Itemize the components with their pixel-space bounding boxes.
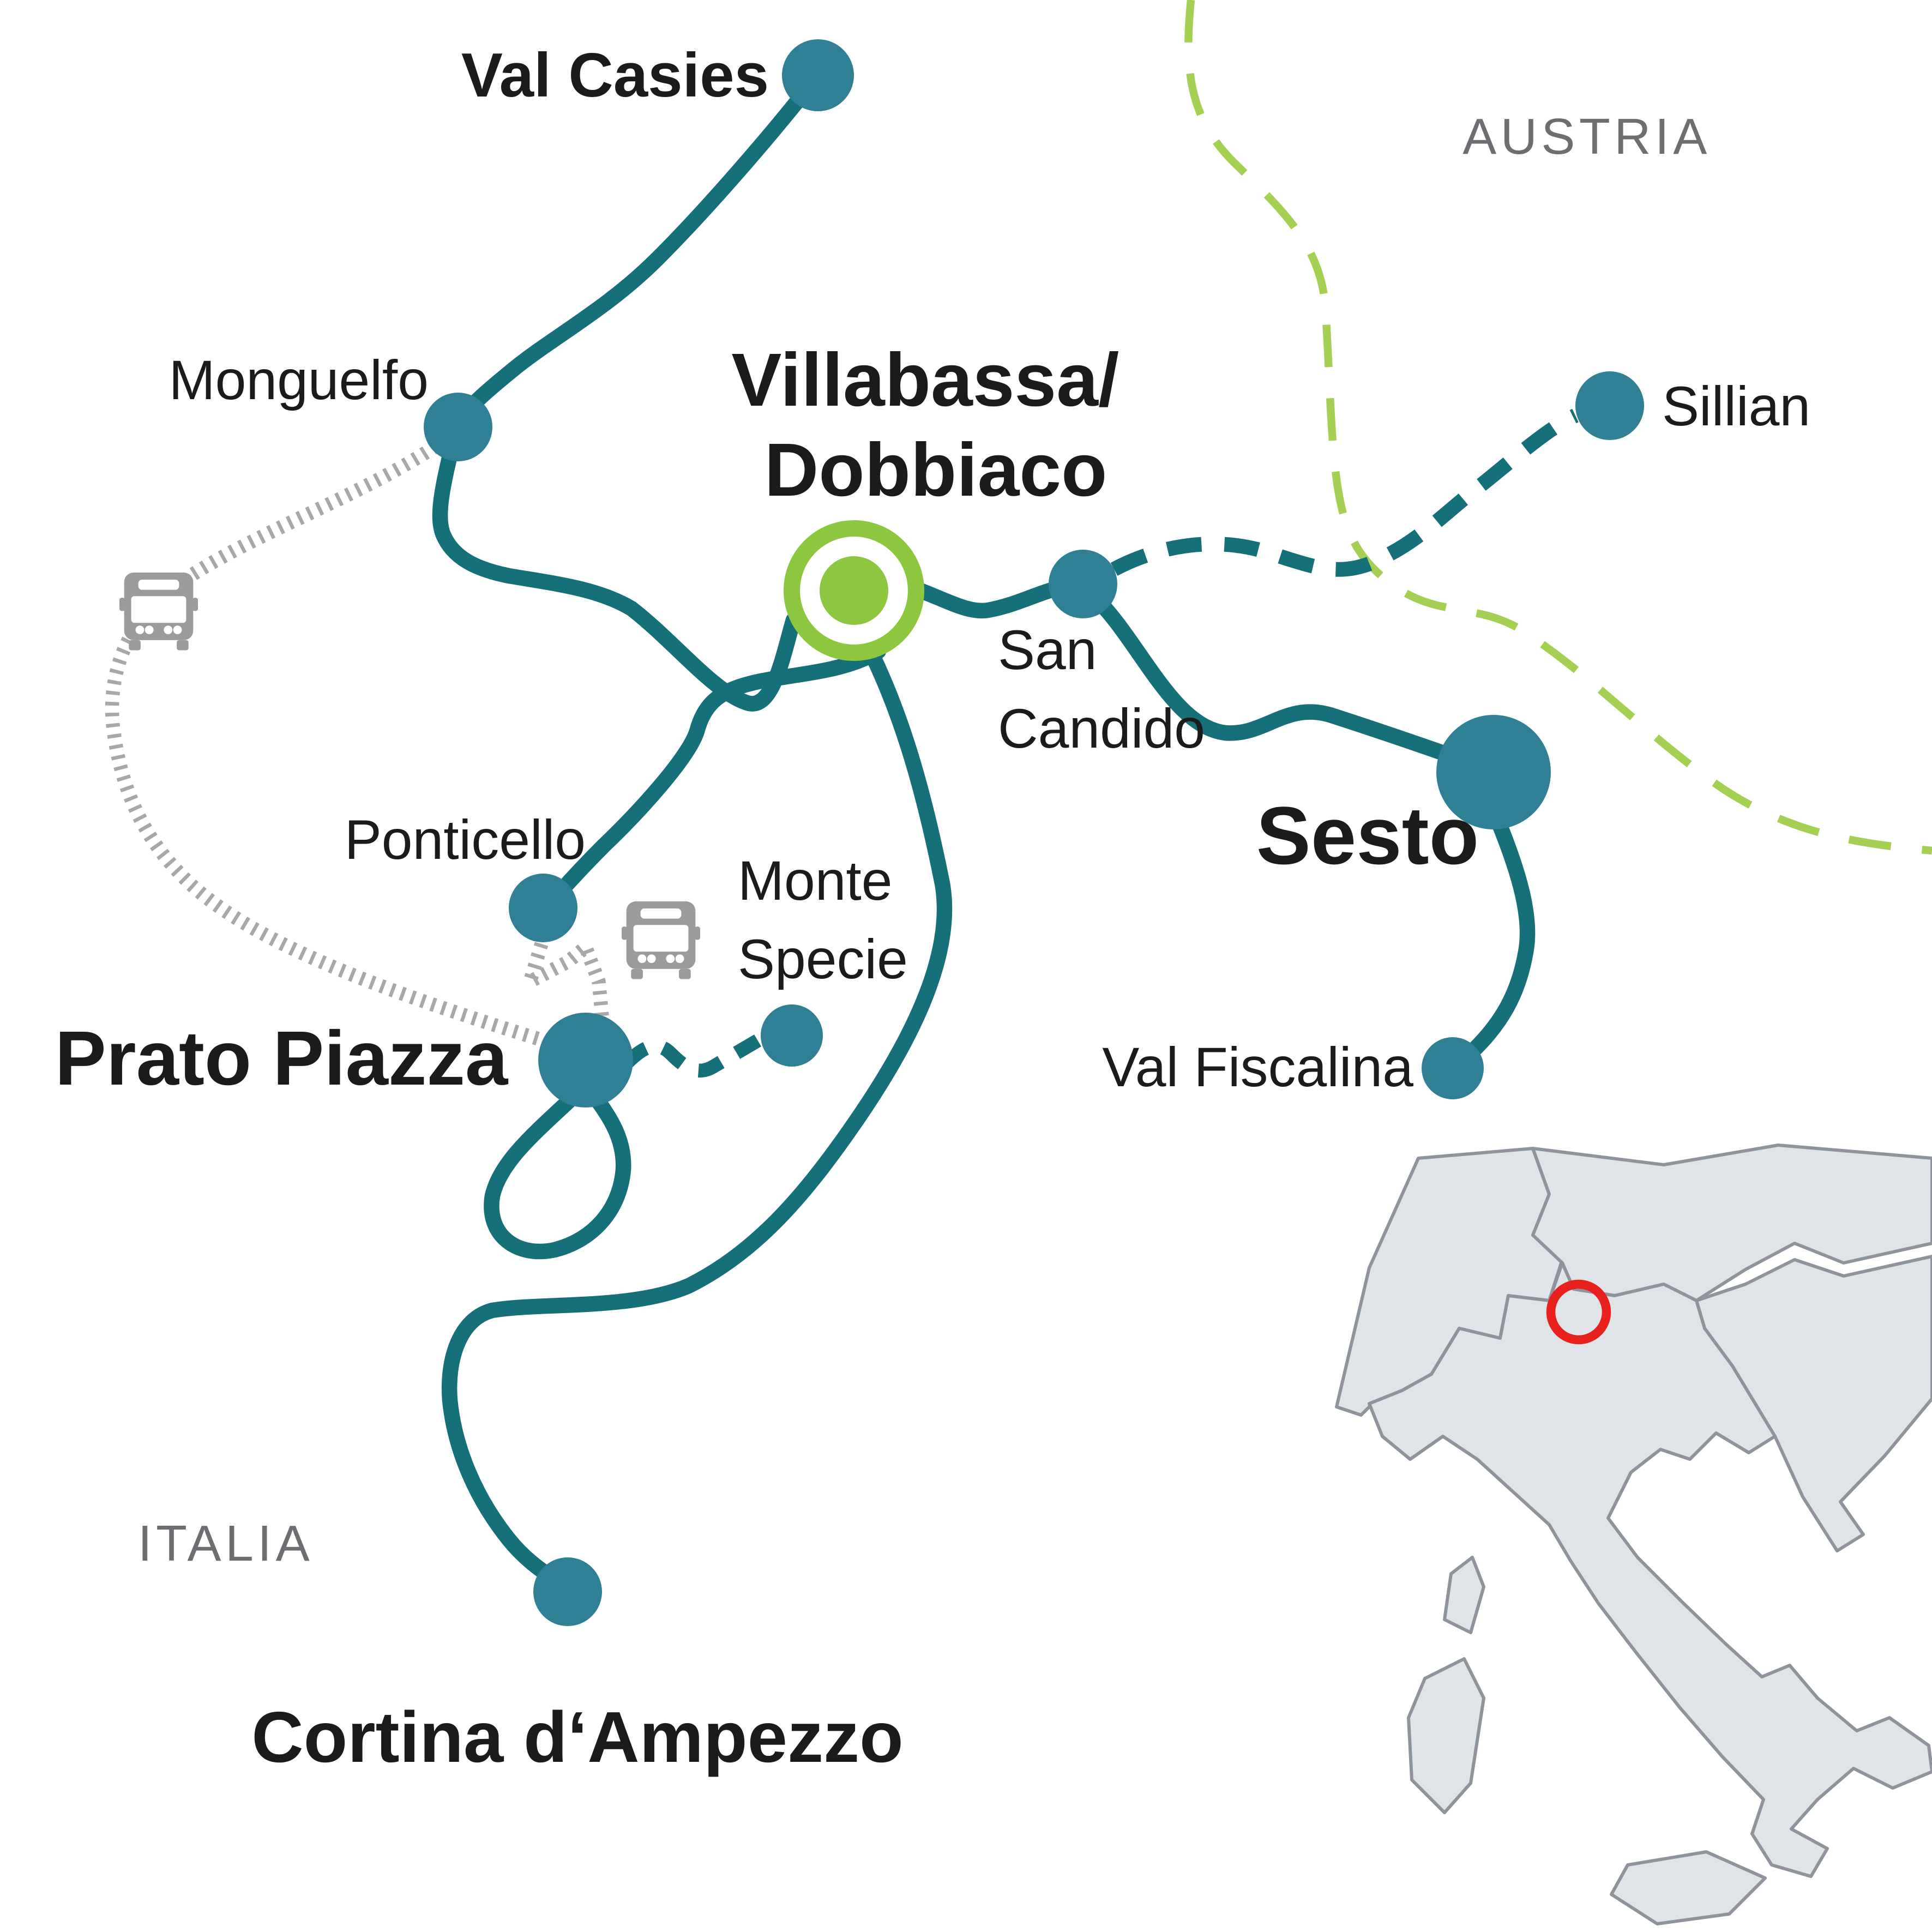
- label-villabassa-line2: Dobbiaco: [765, 428, 1108, 512]
- label-villabassa-dobbiaco: Villabassa/ Dobbiaco: [731, 338, 1140, 512]
- bus-route-monguelfo-prato-piazza: [112, 447, 538, 1039]
- bus-route-lines: [112, 447, 602, 1039]
- station-dot-val-fiscalina: [1422, 1037, 1484, 1099]
- station-dot-prato-piazza: [538, 1013, 633, 1108]
- label-monguelfo: Monguelfo: [169, 349, 429, 411]
- label-monte-specie-line2: Specie: [738, 928, 908, 990]
- label-val-casies: Val Casies: [461, 41, 769, 110]
- label-ponticello: Ponticello: [345, 809, 586, 871]
- label-val-fiscalina: Val Fiscalina: [1102, 1036, 1413, 1098]
- label-prato-piazza: Prato Piazza: [55, 1015, 509, 1101]
- route-prato-piazza-loop: [491, 1094, 623, 1251]
- label-cortina-dampezzo: Cortina d‘Ampezzo: [251, 1697, 903, 1777]
- route-san-candido-sillian-dashed: [1114, 416, 1575, 569]
- bus-icon: [622, 901, 700, 979]
- bus-icon: [119, 573, 198, 651]
- route-map-canvas: Val Casies Monguelfo Villabassa/ Dobbiac…: [0, 0, 1932, 1932]
- route-prato-piazza-monte-specie-dashed: [627, 1039, 761, 1070]
- route-monguelfo-villabassa: [440, 429, 793, 704]
- route-villabassa-cortina: [449, 658, 944, 1587]
- station-dot-san-candido: [1049, 550, 1117, 618]
- inset-island-corsica: [1445, 1557, 1484, 1633]
- label-san-candido-line1: San: [998, 619, 1097, 681]
- hub-inner-dot: [820, 556, 888, 625]
- station-dot-monte-specie: [761, 1004, 823, 1067]
- station-dot-sillian: [1575, 371, 1644, 440]
- inset-island-sicily: [1611, 1852, 1765, 1924]
- label-sesto: Sesto: [1256, 790, 1479, 881]
- station-dot-ponticello: [509, 874, 577, 942]
- hub-marker-villabassa-dobbiaco: [792, 528, 916, 653]
- label-villabassa-line1: Villabassa/: [731, 338, 1119, 422]
- inset-island-sardinia: [1409, 1659, 1484, 1813]
- station-dot-cortina: [533, 1557, 602, 1626]
- label-monte-specie-line1: Monte: [738, 850, 893, 912]
- inset-locator-map: [1337, 1145, 1932, 1924]
- label-monte-specie: Monte Specie: [738, 850, 908, 990]
- label-sillian: Sillian: [1662, 375, 1810, 437]
- station-dot-monguelfo: [424, 393, 492, 461]
- label-san-candido-line2: Candido: [998, 697, 1205, 760]
- label-region-italia: ITALIA: [138, 1515, 314, 1572]
- label-region-austria: AUSTRIA: [1462, 108, 1711, 165]
- bus-route-ponticello-prato-piazza: [530, 944, 602, 1016]
- station-dot-val-casies: [782, 39, 854, 111]
